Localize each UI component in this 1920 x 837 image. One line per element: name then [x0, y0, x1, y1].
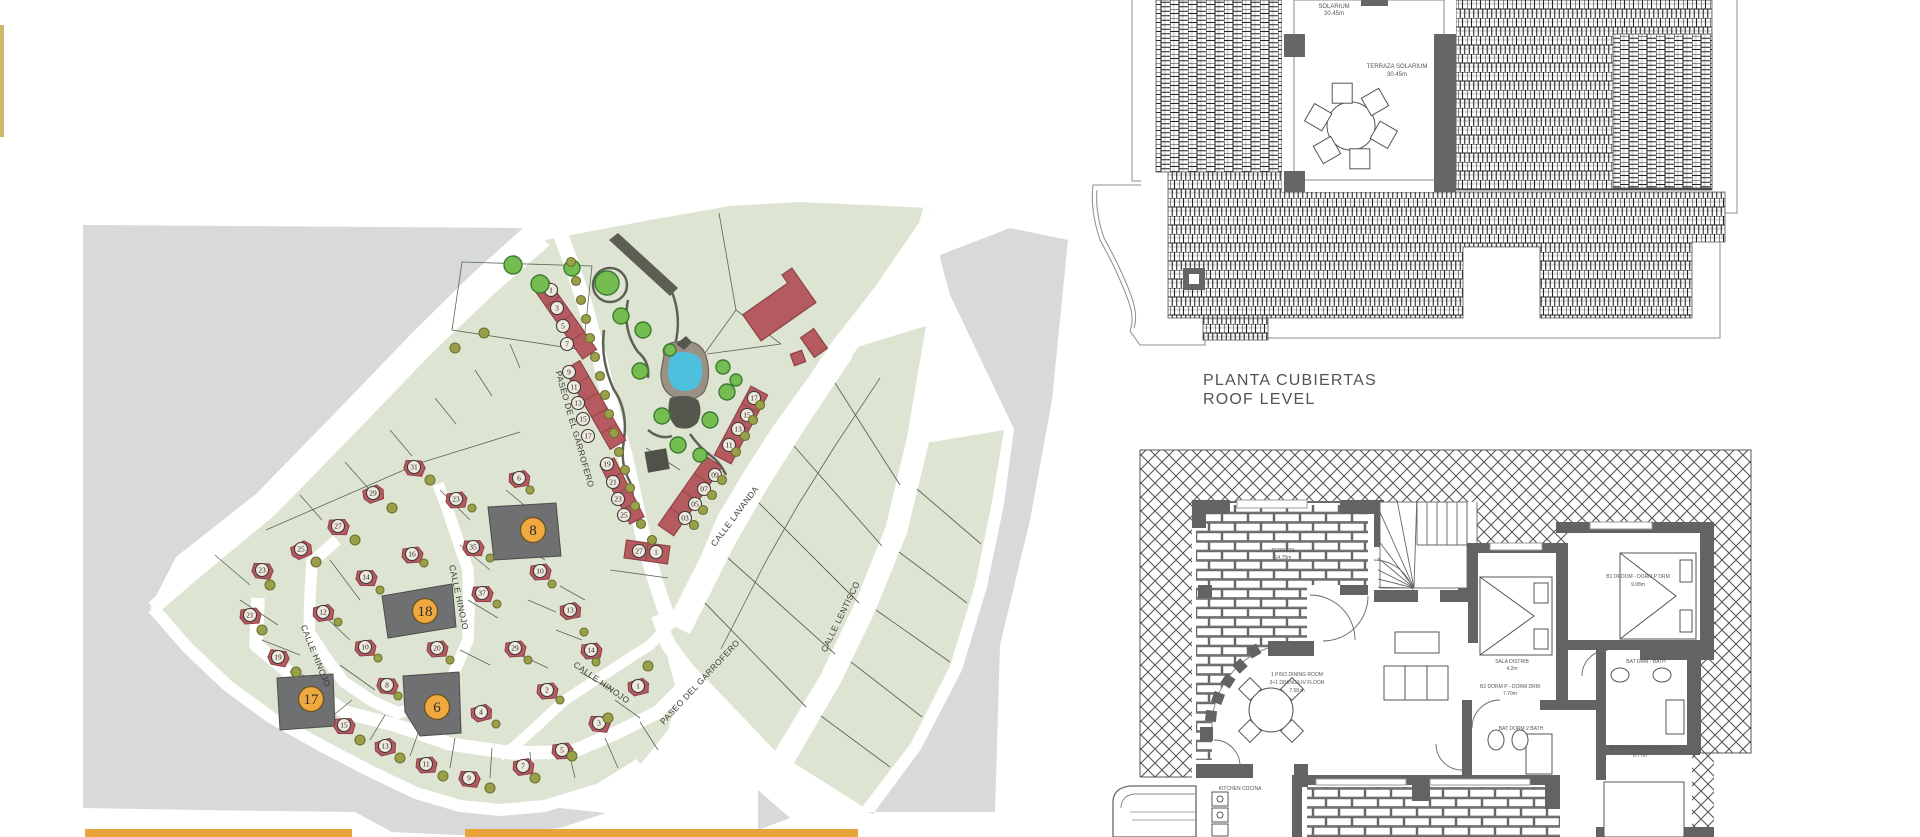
svg-text:BAT DRM - BATH: BAT DRM - BATH: [1626, 659, 1666, 665]
svg-text:SALA DISTRIB: SALA DISTRIB: [1495, 659, 1529, 665]
svg-text:5: 5: [561, 322, 565, 331]
svg-text:13: 13: [381, 742, 389, 751]
svg-text:ROOF LEVEL: ROOF LEVEL: [1203, 391, 1315, 408]
svg-text:BAT DORM 2 BATH: BAT DORM 2 BATH: [1499, 726, 1544, 732]
svg-text:29: 29: [369, 489, 377, 498]
svg-text:8: 8: [529, 523, 537, 539]
svg-text:1: 1: [654, 548, 658, 557]
svg-text:5: 5: [560, 746, 564, 755]
svg-text:20: 20: [433, 644, 441, 653]
svg-text:9: 9: [567, 368, 571, 377]
svg-text:9: 9: [467, 774, 471, 783]
svg-text:7.58 m: 7.58 m: [1289, 688, 1304, 694]
svg-text:11: 11: [570, 383, 577, 392]
svg-text:18: 18: [418, 604, 433, 620]
svg-text:23: 23: [614, 495, 622, 504]
svg-text:10: 10: [361, 643, 369, 652]
svg-text:1: 1: [636, 682, 640, 691]
svg-text:11: 11: [422, 760, 429, 769]
svg-text:14: 14: [587, 646, 595, 655]
svg-text:11: 11: [725, 441, 732, 450]
svg-text:07: 07: [700, 485, 708, 494]
svg-text:19: 19: [603, 460, 611, 469]
svg-text:3+1 DINING/LIV FLOOR: 3+1 DINING/LIV FLOOR: [1270, 680, 1325, 686]
svg-text:31: 31: [410, 463, 418, 472]
svg-text:3: 3: [555, 304, 559, 313]
svg-text:10: 10: [536, 567, 544, 576]
svg-text:12: 12: [319, 608, 327, 617]
svg-text:19: 19: [274, 653, 282, 662]
svg-text:6: 6: [433, 700, 441, 716]
svg-text:KITCHEN COCINA: KITCHEN COCINA: [1219, 786, 1262, 792]
svg-text:SOLARIUM: SOLARIUM: [1318, 4, 1349, 10]
svg-text:29: 29: [511, 644, 519, 653]
svg-text:7.70m: 7.70m: [1503, 691, 1517, 697]
svg-text:8.77m: 8.77m: [1633, 753, 1647, 759]
svg-text:17: 17: [584, 432, 592, 441]
svg-text:05: 05: [691, 500, 699, 509]
svg-text:7: 7: [565, 340, 569, 349]
svg-text:21: 21: [609, 478, 617, 487]
svg-text:17: 17: [304, 692, 320, 708]
svg-text:37: 37: [478, 589, 486, 598]
svg-text:03: 03: [681, 514, 689, 523]
svg-text:16: 16: [408, 550, 416, 559]
svg-text:TERRAZA: TERRAZA: [1271, 548, 1295, 554]
svg-text:13: 13: [734, 425, 742, 434]
svg-text:25: 25: [297, 545, 305, 554]
svg-text:8: 8: [385, 681, 389, 690]
svg-text:27: 27: [334, 522, 342, 531]
svg-text:TERRAZA SOLARIUM: TERRAZA SOLARIUM: [1367, 64, 1428, 70]
svg-text:2: 2: [545, 686, 549, 695]
svg-text:B1 DRDOM - DORM P DRM: B1 DRDOM - DORM P DRM: [1606, 574, 1670, 580]
svg-text:9.08m: 9.08m: [1631, 582, 1645, 588]
svg-text:1: 1: [549, 286, 553, 295]
svg-text:13: 13: [566, 606, 574, 615]
svg-text:25: 25: [620, 511, 628, 520]
svg-text:B3 DORM 3 DORM P DRM: B3 DORM 3 DORM P DRM: [1609, 746, 1670, 752]
svg-text:23: 23: [258, 566, 266, 575]
svg-text:3: 3: [597, 719, 601, 728]
svg-text:30.45m: 30.45m: [1387, 72, 1407, 78]
svg-text:35: 35: [469, 543, 477, 552]
svg-text:4.2m: 4.2m: [1506, 666, 1517, 672]
svg-text:15: 15: [579, 415, 587, 424]
svg-text:1 PISO DINING ROOM: 1 PISO DINING ROOM: [1271, 672, 1323, 678]
svg-text:B2 DORM P - DORM DRM: B2 DORM P - DORM DRM: [1480, 684, 1540, 690]
svg-text:15: 15: [340, 721, 348, 730]
svg-text:4: 4: [479, 708, 483, 717]
svg-text:30.45m: 30.45m: [1324, 11, 1344, 17]
svg-text:27: 27: [635, 547, 643, 556]
svg-text:14.75m: 14.75m: [1275, 555, 1292, 561]
svg-text:21: 21: [246, 611, 254, 620]
svg-text:7: 7: [521, 762, 525, 771]
svg-text:PLANTA CUBIERTAS: PLANTA CUBIERTAS: [1203, 372, 1377, 389]
svg-text:23: 23: [452, 495, 460, 504]
svg-text:14: 14: [362, 573, 370, 582]
svg-text:13: 13: [574, 399, 582, 408]
svg-text:6: 6: [517, 474, 521, 483]
